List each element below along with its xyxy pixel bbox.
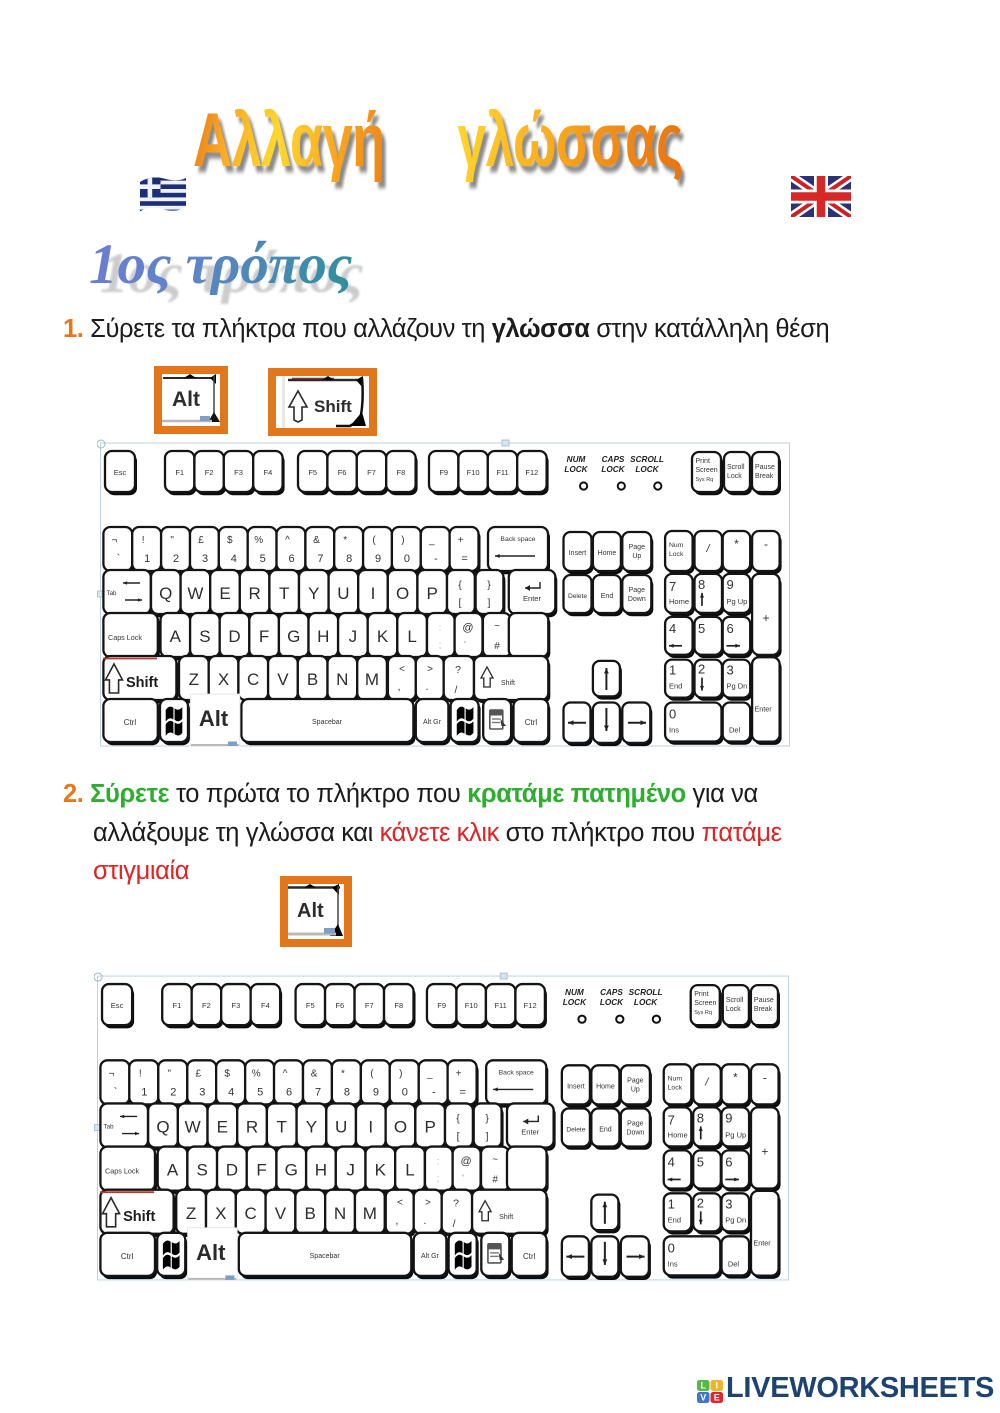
svg-text:Shift: Shift — [314, 397, 352, 416]
svg-text:E: E — [714, 1393, 720, 1403]
svg-text:L: L — [700, 1381, 706, 1391]
svg-text:V: V — [700, 1393, 706, 1403]
svg-text:Alt: Alt — [172, 388, 200, 411]
svg-text:Alt: Alt — [297, 900, 324, 922]
svg-text:I: I — [715, 1381, 718, 1391]
